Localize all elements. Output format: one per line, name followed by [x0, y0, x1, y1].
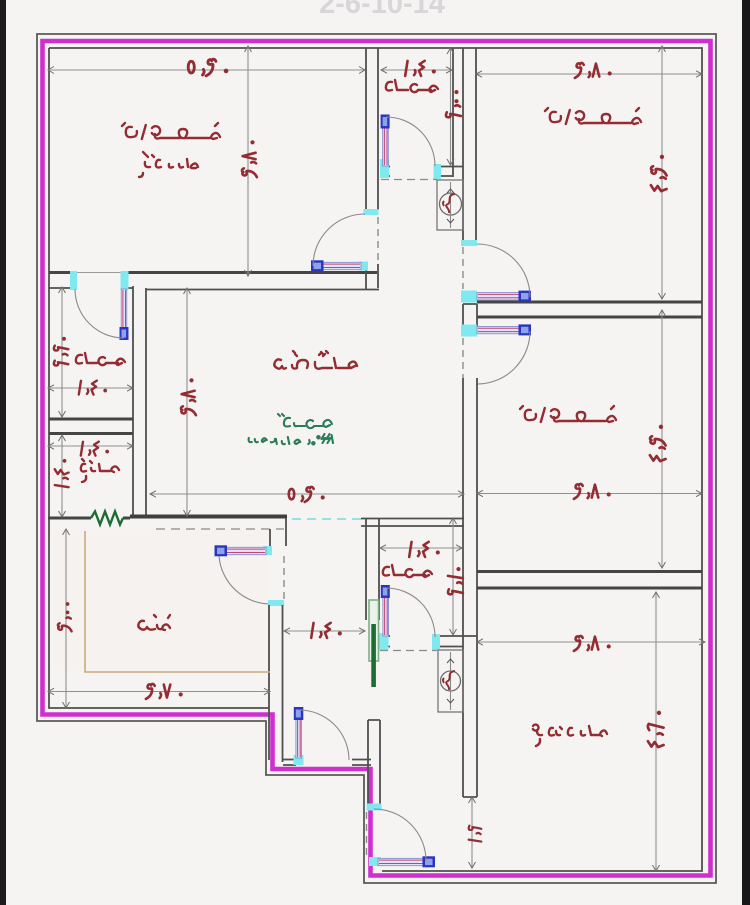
- svg-text:2-6-10-14: 2-6-10-14: [319, 0, 445, 20]
